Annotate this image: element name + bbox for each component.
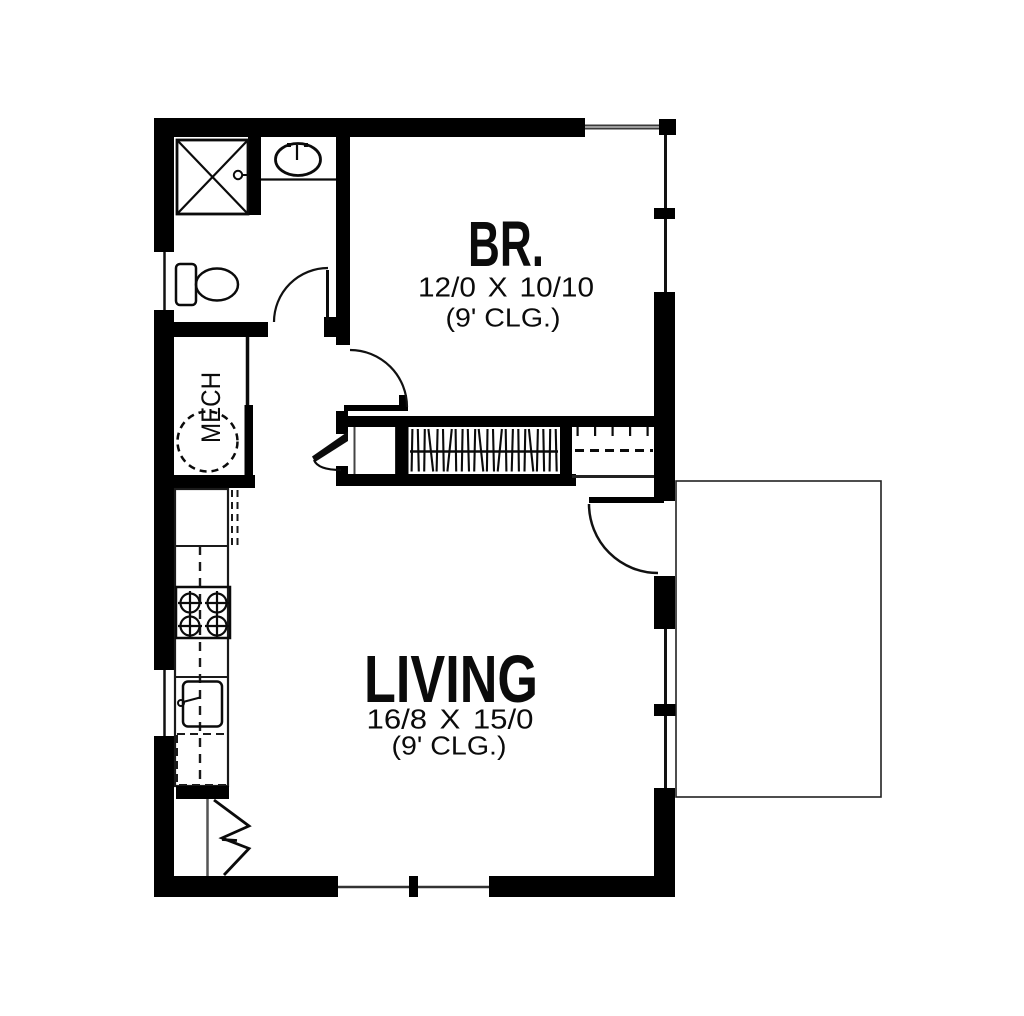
- svg-text:(9' CLG.): (9' CLG.): [446, 303, 561, 333]
- svg-text:BR.: BR.: [468, 208, 544, 280]
- svg-text:12/0 X 10/10: 12/0 X 10/10: [418, 272, 594, 303]
- svg-text:(9' CLG.): (9' CLG.): [392, 731, 507, 761]
- svg-text:MECH: MECH: [196, 372, 226, 443]
